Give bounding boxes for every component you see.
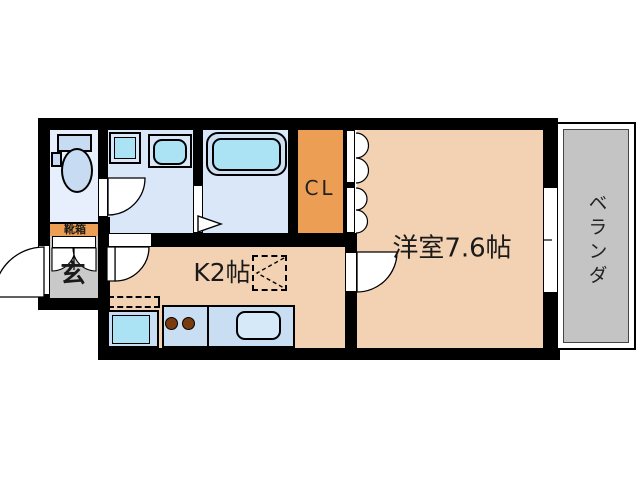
entrance-door-arc — [0, 247, 44, 297]
fridge-dashed-mark — [257, 258, 284, 288]
room-label-kitchen: K2帖 — [193, 253, 250, 289]
washroom-door-leaf — [107, 247, 115, 281]
closet-bifold-arc — [356, 133, 369, 158]
bathroom-folding-door-icon — [198, 216, 221, 232]
room-label-entrance: 玄 — [60, 254, 85, 290]
room-label-closet: CL — [304, 176, 335, 200]
door-symbols — [0, 0, 640, 480]
closet-bifold-arc — [356, 158, 369, 183]
toilet-door-arc — [108, 178, 145, 215]
western-door-arc — [357, 252, 397, 292]
closet-bifold-arc — [356, 210, 368, 233]
floor-plan: 洋室7.6帖 K2帖 CL 玄 靴箱 ベランダ — [0, 0, 640, 480]
room-label-balcony: ベランダ — [584, 193, 611, 289]
closet-bifold-arc — [356, 188, 367, 210]
room-label-shoe-box: 靴箱 — [64, 221, 86, 237]
room-label-western: 洋室7.6帖 — [392, 228, 511, 265]
washroom-door-arc — [115, 247, 149, 281]
